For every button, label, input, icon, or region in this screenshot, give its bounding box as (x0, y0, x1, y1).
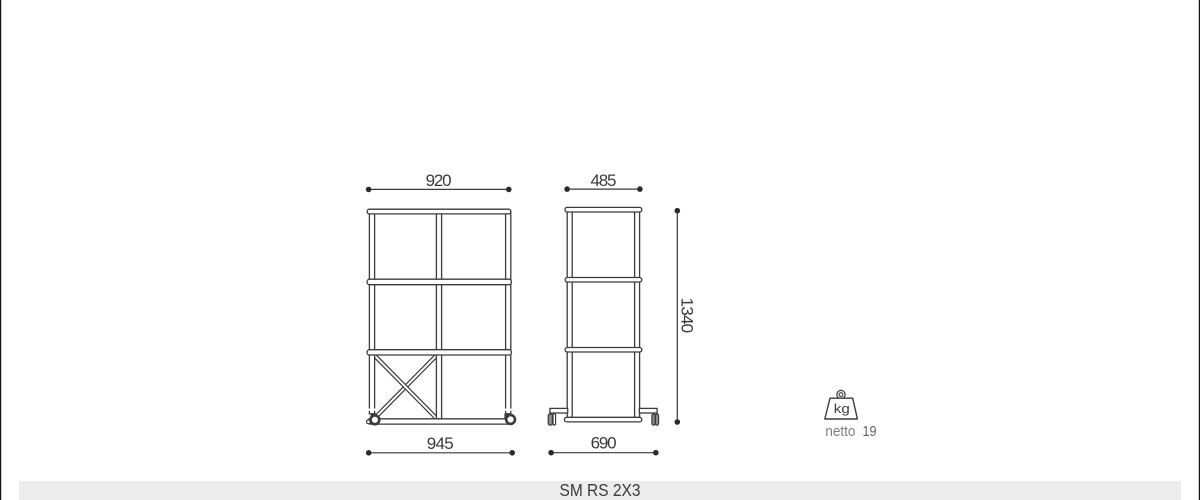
svg-text:945: 945 (427, 434, 454, 453)
svg-text:kg: kg (834, 402, 850, 416)
svg-text:SM RS 2X3: SM RS 2X3 (560, 480, 641, 500)
svg-text:485: 485 (591, 171, 617, 190)
svg-text:19: 19 (863, 423, 877, 440)
svg-text:netto: netto (825, 423, 855, 440)
svg-text:690: 690 (591, 434, 617, 453)
svg-text:1340: 1340 (677, 298, 696, 334)
svg-text:920: 920 (426, 171, 452, 190)
